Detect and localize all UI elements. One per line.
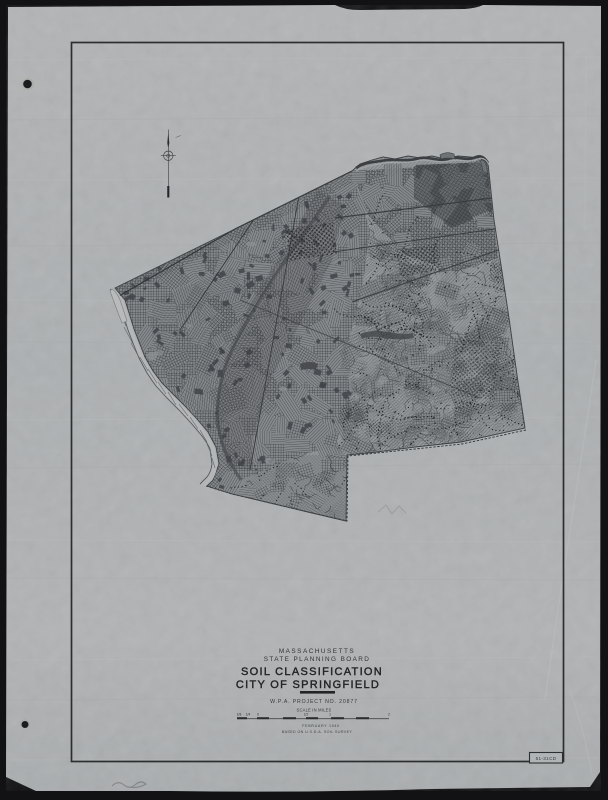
- svg-text:1: 1: [329, 713, 331, 717]
- svg-text:SOIL CLASSIFICATION: SOIL CLASSIFICATION: [241, 666, 383, 678]
- svg-text:BASED ON U.S.D.A. SOIL SURVEY: BASED ON U.S.D.A. SOIL SURVEY: [282, 730, 353, 734]
- svg-text:2: 2: [388, 713, 390, 717]
- svg-text:MASSACHUSETTS: MASSACHUSETTS: [279, 648, 355, 655]
- svg-text:1/2: 1/2: [304, 713, 309, 717]
- svg-text:FEBRUARY 1940: FEBRUARY 1940: [302, 724, 340, 728]
- svg-text:CITY OF SPRINGFIELD: CITY OF SPRINGFIELD: [236, 679, 380, 691]
- svg-text:1/8: 1/8: [237, 713, 242, 717]
- svg-text:51-31CD: 51-31CD: [536, 756, 557, 761]
- svg-text:STATE PLANNING BOARD: STATE PLANNING BOARD: [264, 656, 371, 663]
- svg-text:1/4: 1/4: [246, 713, 251, 717]
- svg-text:0: 0: [257, 713, 259, 717]
- svg-text:SCALE IN MILES: SCALE IN MILES: [297, 708, 332, 713]
- svg-text:W.P.A. PROJECT NO. 20877: W.P.A. PROJECT NO. 20877: [270, 699, 358, 705]
